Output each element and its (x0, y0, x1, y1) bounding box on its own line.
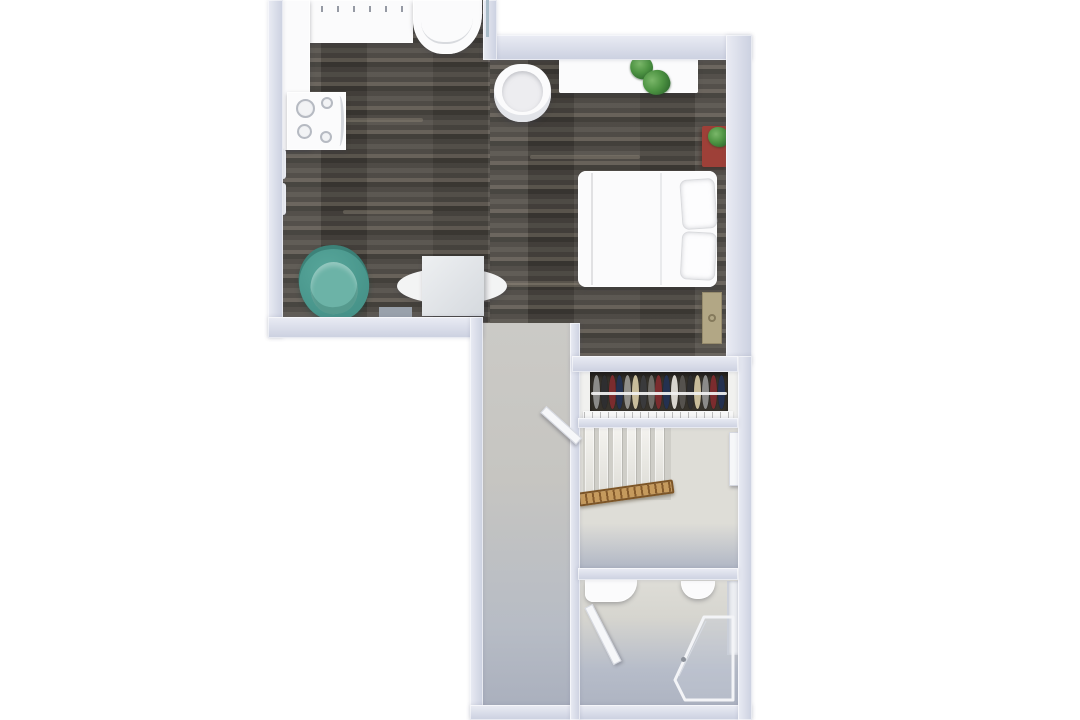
sink-basin-line (421, 18, 473, 44)
blanket-edge-line (660, 173, 662, 285)
door-knob (708, 314, 716, 322)
window-glass-line (486, 0, 489, 37)
wall-stairs-bathroom (578, 568, 738, 580)
bedroom-door (702, 292, 722, 344)
wall-studio-bottom (268, 317, 483, 338)
wall-bottom-exterior (470, 705, 752, 720)
wall-top-joint (483, 0, 497, 60)
wall-right-lower (738, 356, 752, 720)
stair-tread (599, 428, 608, 498)
bed-pillow (680, 231, 717, 281)
stair-tread (585, 428, 594, 500)
floor-plank-highlight (343, 210, 433, 214)
wall-left-exterior (268, 0, 283, 338)
stove-burner (320, 131, 332, 143)
teal-armchair-seat (308, 260, 360, 317)
floor-plank-highlight (530, 155, 640, 159)
stove-burner (297, 124, 312, 139)
stove-burner (296, 99, 315, 118)
oven-door-handle (335, 96, 344, 146)
wall-closet-top (572, 356, 738, 372)
stove-burner (321, 97, 333, 109)
shower-drain (681, 657, 686, 662)
sheet-fold-line (591, 173, 593, 285)
floorplan-canvas (0, 0, 1080, 720)
closet-rail (591, 392, 727, 395)
stove (287, 92, 346, 150)
wall-top-exterior (483, 35, 752, 60)
wall-closet-stairs (578, 418, 738, 428)
hallway-floor (483, 323, 570, 712)
desk-chair-seat (502, 71, 543, 112)
bed-pillow (679, 178, 717, 230)
wall-hallway-left (470, 317, 483, 720)
dining-table (422, 256, 484, 316)
wall-hallway-right (570, 323, 580, 720)
desk-chair (494, 64, 551, 122)
wall-right-upper (726, 35, 752, 365)
